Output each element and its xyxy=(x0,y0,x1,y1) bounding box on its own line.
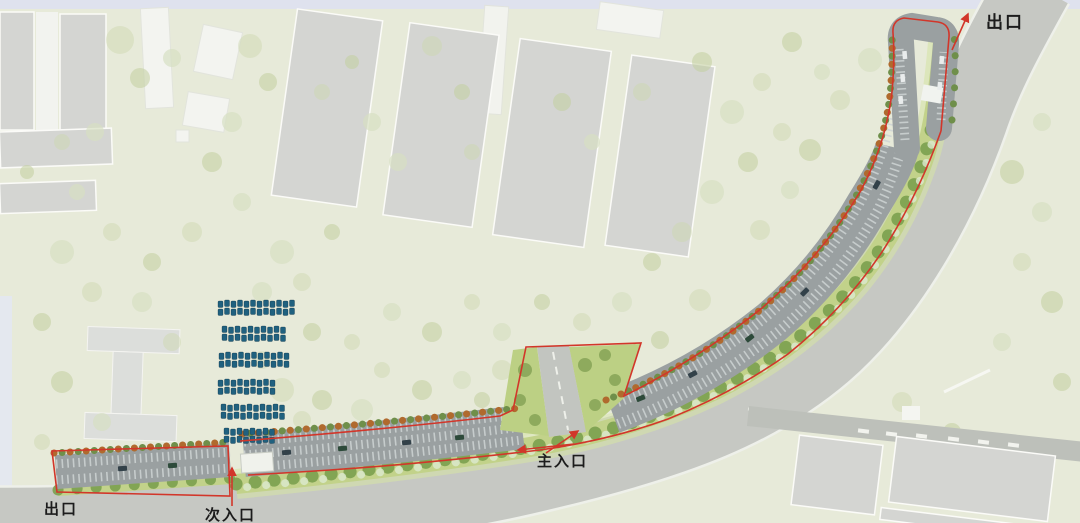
left-margin-strip xyxy=(0,296,12,486)
site-plan: 出口 主入口 次入口 出口 xyxy=(0,0,1080,523)
path-strip xyxy=(36,12,58,130)
label-secondary-entrance: 次入口 xyxy=(205,504,256,523)
label-exit-bottom-left: 出口 xyxy=(44,498,78,519)
road-structure xyxy=(902,406,920,420)
label-main-entrance: 主入口 xyxy=(537,450,588,471)
entrance-shelter xyxy=(240,452,273,473)
site-plan-canvas xyxy=(0,0,1080,523)
label-exit-top-right: 出口 xyxy=(986,8,1024,33)
